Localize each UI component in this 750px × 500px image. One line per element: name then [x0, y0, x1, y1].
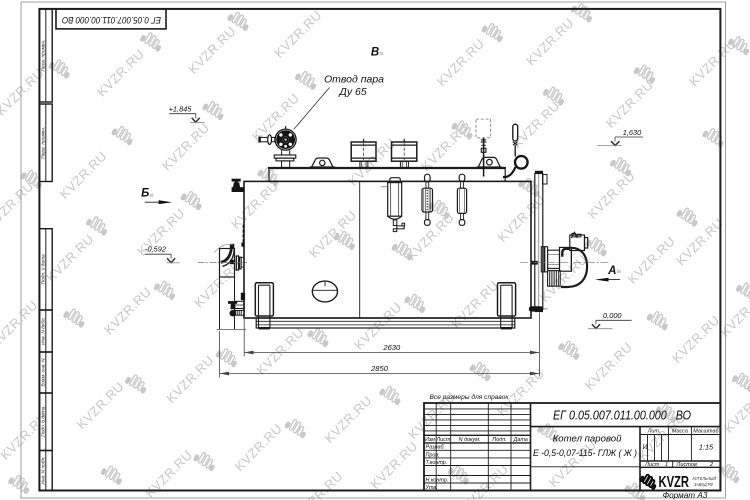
svg-text:В: В — [371, 47, 379, 59]
svg-text:Подп. и дата: Подп. и дата — [40, 406, 46, 436]
svg-text:КОТЕЛЬНЫЙ: КОТЕЛЬНЫЙ — [693, 476, 717, 481]
svg-text:1,630: 1,630 — [623, 128, 642, 137]
svg-text:Лист: Лист — [644, 462, 660, 468]
svg-text:Котел паровой: Котел паровой — [553, 434, 622, 445]
svg-text:KVZR: KVZR — [659, 474, 690, 491]
svg-text:Б: Б — [141, 188, 149, 200]
svg-text:Отвод пара: Отвод пара — [324, 74, 384, 86]
svg-text:Дата: Дата — [513, 437, 528, 443]
svg-text:Е -0,5-0,07-115- ГЛЖ ( Ж ): Е -0,5-0,07-115- ГЛЖ ( Ж ) — [533, 448, 637, 458]
svg-text:1: 1 — [665, 462, 668, 468]
svg-text:И: И — [643, 442, 649, 451]
svg-text:Н.контр.: Н.контр. — [426, 478, 449, 484]
svg-text:Утв.: Утв. — [425, 485, 438, 491]
svg-text:Инв. N подл.: Инв. N подл. — [40, 456, 46, 484]
svg-text:Масса: Масса — [672, 429, 688, 435]
svg-text:Листов: Листов — [676, 462, 697, 468]
svg-text:Подп. и дата: Подп. и дата — [40, 254, 46, 284]
svg-text:Т.контр.: Т.контр. — [426, 460, 448, 466]
svg-text:+1,845: +1,845 — [169, 105, 193, 114]
svg-text:1:15: 1:15 — [699, 442, 714, 451]
svg-text:Все размеры для справок: Все размеры для справок — [430, 393, 510, 401]
svg-text:2630: 2630 — [382, 343, 401, 352]
svg-text:2850: 2850 — [370, 364, 389, 373]
svg-text:Лит.: Лит. — [647, 429, 661, 435]
svg-text:Взам. инв. N: Взам. инв. N — [40, 358, 46, 386]
svg-text:Разраб.: Разраб. — [426, 445, 446, 451]
svg-text:ЕГ 0.05.007.011.00.000 ВО: ЕГ 0.05.007.011.00.000 ВО — [553, 408, 691, 422]
svg-text:ЗАВОД РФ: ЗАВОД РФ — [694, 482, 714, 487]
svg-text:Ду 65: Ду 65 — [338, 86, 367, 98]
svg-text:Пров.: Пров. — [426, 452, 440, 458]
svg-text:Перв. примен.: Перв. примен. — [40, 40, 46, 72]
svg-text:Перв. примен.: Перв. примен. — [40, 127, 46, 159]
svg-text:Изм: Изм — [425, 437, 435, 443]
svg-text:-0,592: -0,592 — [145, 245, 166, 254]
svg-text:Подп.: Подп. — [492, 437, 506, 443]
svg-text:0,000: 0,000 — [603, 311, 622, 320]
svg-text:Формат А3: Формат А3 — [663, 491, 708, 500]
svg-text:А: А — [607, 265, 616, 277]
svg-text:Масштаб: Масштаб — [693, 429, 719, 435]
svg-text:Инв. N дубл.: Инв. N дубл. — [40, 317, 46, 345]
svg-text:N докум.: N докум. — [459, 437, 481, 443]
svg-text:ЕГ 0.05.007.011.00.000 ВО: ЕГ 0.05.007.011.00.000 ВО — [62, 15, 161, 25]
svg-text:Лист: Лист — [435, 437, 450, 443]
